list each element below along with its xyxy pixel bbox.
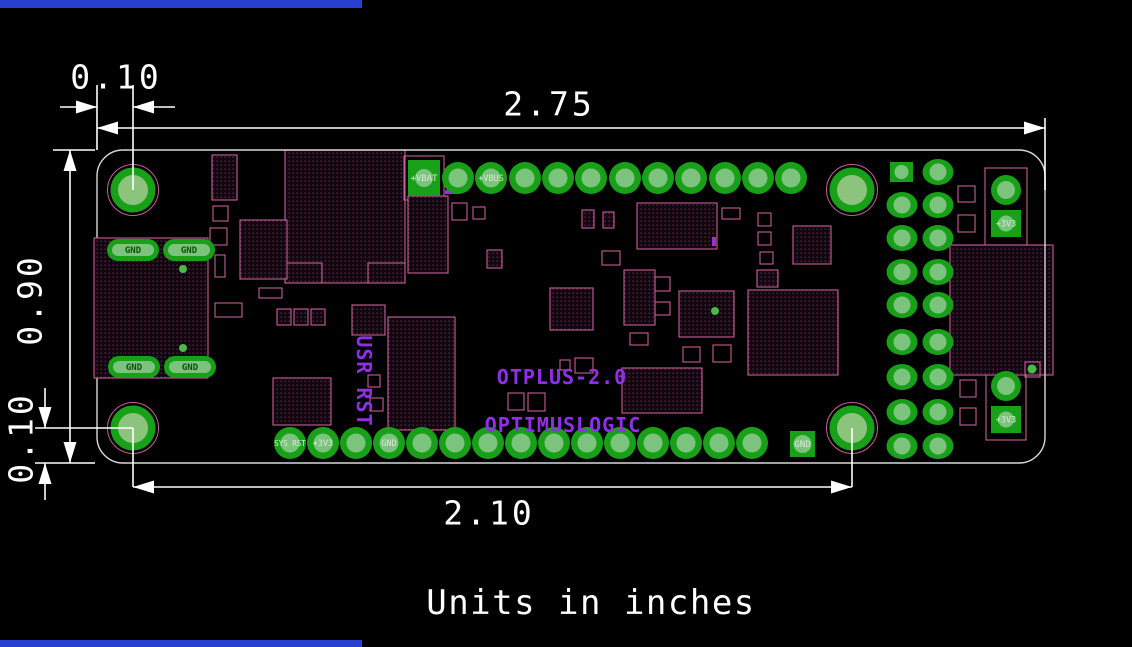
- top-header-pad-core: [649, 169, 668, 188]
- top-header-pad-core: [716, 169, 735, 188]
- bottom-header-pad-core: [446, 434, 465, 453]
- component-footprint: [758, 232, 771, 245]
- right-power-pad-core: [997, 377, 1015, 395]
- right-header-pad-core: [894, 438, 911, 455]
- right-header-pad-core: [894, 264, 911, 281]
- right-header-pad-core: [894, 297, 911, 314]
- component-footprint: [950, 245, 1053, 375]
- component-footprint: [630, 333, 648, 345]
- component-footprint: [473, 207, 485, 219]
- right-header-pad-core: [930, 404, 947, 421]
- dimension-label-board-width: 2.75: [503, 88, 594, 121]
- silkscreen-mark: [712, 237, 716, 246]
- component-footprint: [655, 302, 670, 315]
- pad-label: GND: [381, 439, 396, 449]
- bottom-header-pad-core: [743, 434, 762, 453]
- pad-label: +VBUS: [478, 174, 504, 184]
- component-footprint: [311, 309, 325, 325]
- dimension-label-hole-span: 2.10: [443, 497, 534, 530]
- component-footprint: [679, 291, 734, 337]
- bottom-header-pad-core: [677, 434, 696, 453]
- right-header-pad-core: [930, 334, 947, 351]
- component-footprint: [215, 255, 225, 277]
- component-footprint: [240, 220, 287, 279]
- component-footprint: [624, 270, 655, 325]
- dimension-arrowhead: [76, 101, 97, 114]
- component-footprint: [213, 206, 228, 221]
- via-dot: [711, 307, 719, 315]
- component-footprint: [960, 380, 976, 397]
- component-footprint: [294, 309, 308, 325]
- component-footprint: [960, 408, 976, 425]
- pad-label: GND: [182, 363, 199, 373]
- dimension-arrowhead: [133, 481, 154, 494]
- via-dot: [1028, 365, 1037, 374]
- right-header-pad-core: [930, 230, 947, 247]
- right-header-pad-core: [930, 164, 947, 181]
- component-footprint: [758, 213, 771, 226]
- right-header-pad-core: [894, 404, 911, 421]
- right-header-pad-core: [894, 369, 911, 386]
- component-footprint: [277, 309, 291, 325]
- top-header-pad-core: [682, 169, 701, 188]
- component-footprint: [637, 203, 717, 249]
- right-header-pad-core: [930, 438, 947, 455]
- component-footprint: [793, 226, 831, 264]
- bottom-header-pad-core: [347, 434, 366, 453]
- dimension-arrowhead: [1024, 122, 1045, 135]
- top-header-pad-core: [516, 169, 535, 188]
- component-footprint: [582, 210, 594, 228]
- dimension-arrowhead: [64, 442, 77, 463]
- component-footprint: [757, 270, 778, 287]
- dimension-label-board-height: 0.90: [14, 254, 47, 345]
- right-header-pad-core: [930, 197, 947, 214]
- top-header-pad-core: [449, 169, 468, 188]
- component-footprint: [273, 378, 331, 425]
- component-footprint: [603, 212, 614, 228]
- component-footprint: [508, 393, 524, 410]
- top-header-pad-core: [582, 169, 601, 188]
- right-header-pad-core: [930, 369, 947, 386]
- right-header-pad-core: [894, 230, 911, 247]
- component-footprint: [285, 263, 322, 283]
- pad-label: SYS RST: [274, 439, 306, 448]
- right-header-pad-core: [930, 297, 947, 314]
- silkscreen-product-name: OTPLUS-2.0: [497, 367, 627, 387]
- silkscreen-user-reset-label: USR RST: [354, 335, 374, 426]
- component-footprint: [655, 277, 670, 291]
- units-note: Units in inches: [426, 586, 756, 620]
- top-header-pad-core: [549, 169, 568, 188]
- via-dot: [179, 265, 187, 273]
- component-footprint: [683, 347, 700, 362]
- component-footprint: [722, 208, 740, 219]
- component-footprint: [259, 288, 282, 298]
- component-footprint: [487, 250, 502, 268]
- component-footprint: [958, 186, 975, 202]
- component-footprint: [528, 393, 545, 411]
- dimension-arrowhead: [133, 101, 154, 114]
- component-footprint: [215, 303, 242, 317]
- bottom-header-pad-core: [644, 434, 663, 453]
- pad-label: GND: [125, 246, 142, 256]
- component-footprint: [452, 203, 467, 220]
- pad-label: +3V3: [313, 439, 333, 449]
- pad-label: +VBAT: [410, 174, 438, 184]
- via-dot: [179, 344, 187, 352]
- pad-label: +3V3: [996, 416, 1016, 426]
- mounting-hole: [837, 175, 867, 205]
- pad-label: GND: [126, 363, 143, 373]
- component-footprint: [760, 252, 773, 264]
- component-footprint: [212, 155, 237, 200]
- component-footprint: [550, 288, 593, 330]
- component-footprint: [602, 251, 620, 265]
- bottom-header-pad-core: [413, 434, 432, 453]
- dimension-label-left-hole-offset: 0.10: [70, 61, 161, 94]
- right-header-pad-core: [894, 197, 911, 214]
- component-footprint: [352, 305, 385, 335]
- component-footprint: [368, 263, 405, 283]
- right-header-square-pad-core: [895, 165, 909, 179]
- component-footprint: [713, 345, 731, 362]
- right-power-pad-core: [997, 181, 1015, 199]
- silkscreen-brand: OPTIMUSLOGIC: [485, 415, 642, 435]
- bottom-header-pad-core: [710, 434, 729, 453]
- pad-label: +3V3: [996, 220, 1016, 230]
- component-footprint: [210, 228, 227, 245]
- component-footprint: [622, 368, 702, 413]
- top-header-pad-core: [782, 169, 801, 188]
- right-header-pad-core: [894, 334, 911, 351]
- dimension-arrowhead: [831, 481, 852, 494]
- component-footprint: [748, 290, 838, 375]
- top-header-pad-core: [616, 169, 635, 188]
- pad-label: GND: [181, 246, 198, 256]
- pad-label: GND: [794, 440, 810, 450]
- right-header-pad-core: [930, 264, 947, 281]
- component-footprint: [388, 317, 455, 430]
- pcb-dimension-drawing: GNDGNDGNDGND+VBAT+VBUSGNDSYS RST+3V3GND+…: [0, 0, 1132, 647]
- top-header-pad-core: [749, 169, 768, 188]
- component-footprint: [408, 196, 448, 273]
- component-footprint: [958, 215, 975, 232]
- dimension-arrowhead: [97, 122, 118, 135]
- dimension-label-bottom-hole-offset: 0.10: [5, 392, 38, 483]
- dimension-arrowhead: [64, 150, 77, 171]
